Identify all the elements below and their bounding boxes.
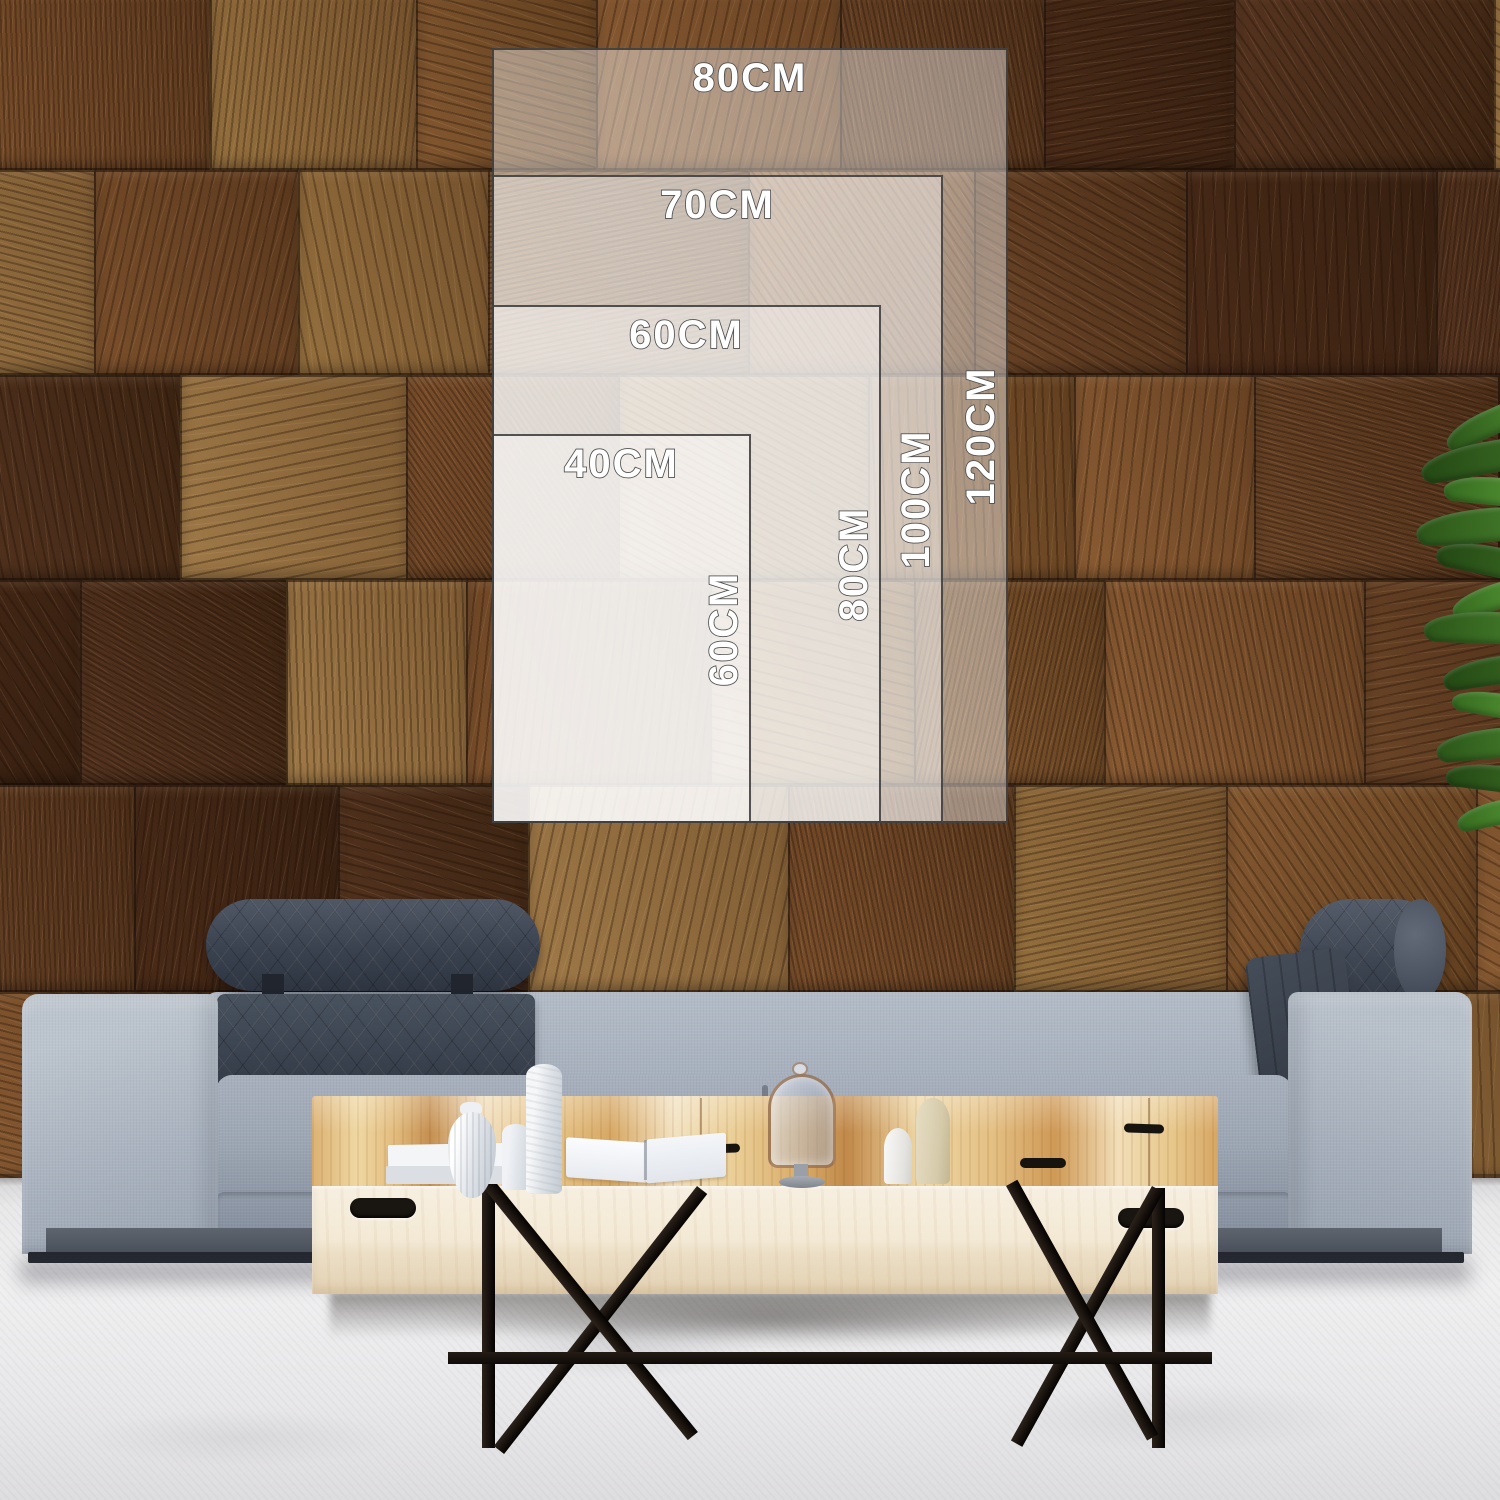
bolster-end-cap xyxy=(1394,899,1446,1001)
wood-block xyxy=(1234,0,1496,170)
open-book-left-page xyxy=(566,1137,648,1183)
table-leg-stretcher xyxy=(448,1352,1212,1364)
wood-block xyxy=(1074,375,1256,580)
sofa-arm-right xyxy=(1288,992,1472,1254)
cloche-dome xyxy=(768,1074,836,1168)
table-top-slot xyxy=(1124,1123,1164,1133)
size-width-label: 70CM xyxy=(494,185,941,225)
wood-block xyxy=(1494,0,1500,170)
wood-block xyxy=(1044,0,1236,170)
wood-block xyxy=(1104,580,1366,785)
candle-tall xyxy=(916,1098,950,1184)
wood-block xyxy=(0,0,212,170)
cylinder-vase-tall xyxy=(526,1064,562,1194)
wood-block xyxy=(286,580,468,785)
size-width-label: 80CM xyxy=(494,58,1006,98)
wood-block xyxy=(0,170,96,375)
wood-block xyxy=(298,170,490,375)
size-width-label: 60CM xyxy=(494,315,879,355)
cloche-base xyxy=(779,1176,825,1188)
sofa-arm-left xyxy=(22,994,218,1254)
open-book-right-page xyxy=(646,1133,726,1184)
size-height-label: 120CM xyxy=(961,366,1001,505)
table-top-slot xyxy=(1020,1158,1066,1168)
wood-block xyxy=(1436,170,1500,375)
open-book-spine xyxy=(644,1140,647,1180)
size-overlay-40x60: 40CM 60CM xyxy=(492,434,751,823)
table-front-face xyxy=(312,1186,1218,1294)
size-height-label: 60CM xyxy=(704,571,744,686)
wood-block xyxy=(180,375,408,580)
wood-block xyxy=(1186,170,1438,375)
candle-small xyxy=(884,1128,912,1184)
wood-block xyxy=(210,0,418,170)
wood-block xyxy=(0,580,82,785)
sofa-headrest-roll xyxy=(206,899,540,991)
size-width-label: 40CM xyxy=(494,444,749,484)
table-handle xyxy=(350,1198,416,1218)
size-guide-mockup: 80CM 120CM 70CM 100CM 60CM 80CM 40CM 60C… xyxy=(0,0,1500,1500)
table-board-seam xyxy=(1148,1098,1150,1186)
wood-block xyxy=(80,580,288,785)
wood-block xyxy=(0,375,182,580)
size-height-label: 100CM xyxy=(896,430,936,569)
wood-block xyxy=(94,170,300,375)
size-height-label: 80CM xyxy=(834,507,874,622)
table-leg xyxy=(1152,1188,1165,1448)
table-leg xyxy=(482,1188,495,1448)
